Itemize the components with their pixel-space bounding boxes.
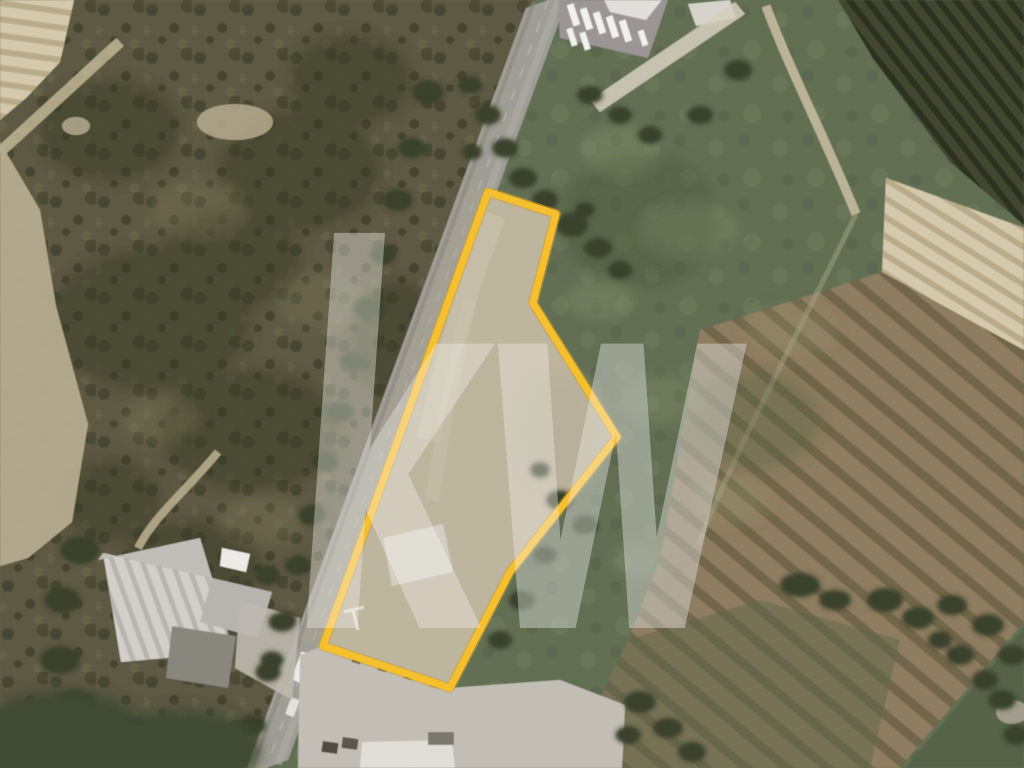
satellite-map: kw	[0, 0, 1024, 768]
aerial-photo: kw	[0, 0, 1024, 768]
noise-overlay	[0, 0, 1024, 768]
